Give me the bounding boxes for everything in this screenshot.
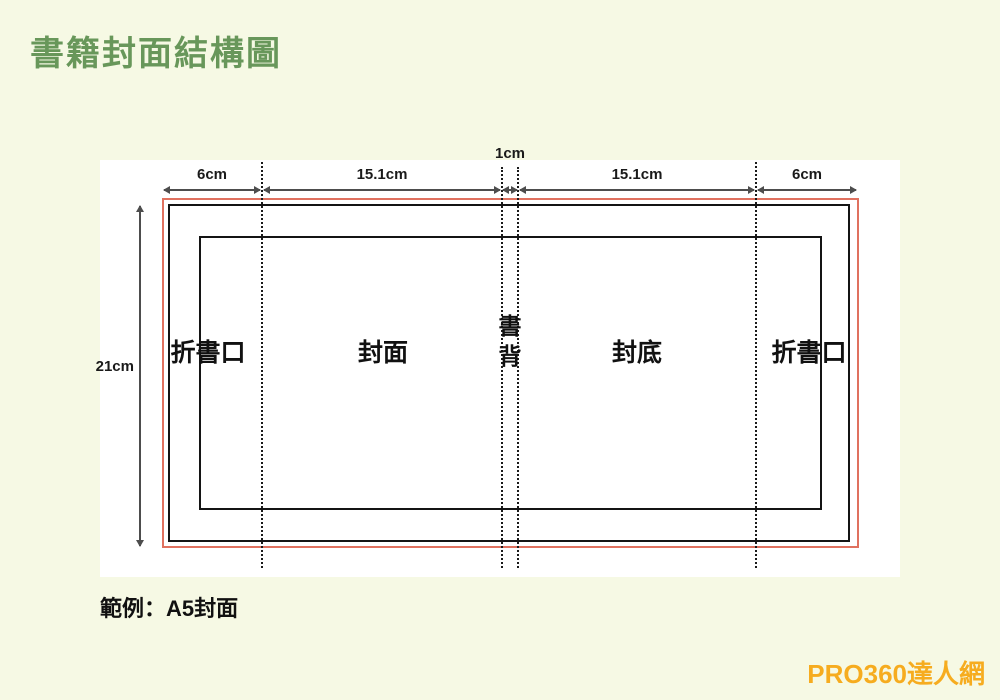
dim-arrow-back-cover — [520, 189, 754, 191]
page-title: 書籍封面結構圖 — [30, 26, 282, 75]
brand-logo: PRO360達人網 — [807, 654, 985, 691]
arrowhead-right-icon — [494, 186, 501, 194]
arrowhead-left-icon — [519, 186, 526, 194]
arrowhead-up-icon — [136, 205, 144, 212]
dim-arrow-front-cover — [264, 189, 500, 191]
arrowhead-right-icon — [850, 186, 857, 194]
arrowhead-left-icon — [263, 186, 270, 194]
arrowhead-right-icon — [748, 186, 755, 194]
dim-arrow-spine — [503, 189, 517, 191]
dim-label-back-cover: 15.1cm — [537, 166, 737, 183]
zone-label-spine: 書背 — [496, 312, 524, 372]
zone-label-back-cover: 封底 — [562, 333, 712, 369]
arrowhead-left-icon — [502, 186, 509, 194]
dim-label-spine: 1cm — [480, 145, 540, 162]
dim-label-flap-right: 6cm — [757, 166, 857, 183]
page: 書籍封面結構圖 6cm 15.1cm 1cm 15.1cm 6cm 21cm 折… — [0, 0, 1000, 700]
arrowhead-right-icon — [254, 186, 261, 194]
zone-label-flap-right: 折書口 — [734, 333, 884, 369]
dim-label-height: 21cm — [86, 358, 134, 375]
arrowhead-left-icon — [163, 186, 170, 194]
safe-area-box — [199, 236, 822, 510]
dim-label-front-cover: 15.1cm — [282, 166, 482, 183]
arrowhead-down-icon — [136, 540, 144, 547]
dim-label-flap-left: 6cm — [162, 166, 262, 183]
dim-arrow-flap-right — [758, 189, 856, 191]
dim-arrow-height — [139, 206, 141, 546]
arrowhead-left-icon — [757, 186, 764, 194]
arrowhead-right-icon — [511, 186, 518, 194]
zone-label-front-cover: 封面 — [308, 333, 458, 369]
zone-label-flap-left: 折書口 — [133, 333, 283, 369]
dim-arrow-flap-left — [164, 189, 260, 191]
example-caption: 範例：A5封面 — [100, 591, 238, 623]
